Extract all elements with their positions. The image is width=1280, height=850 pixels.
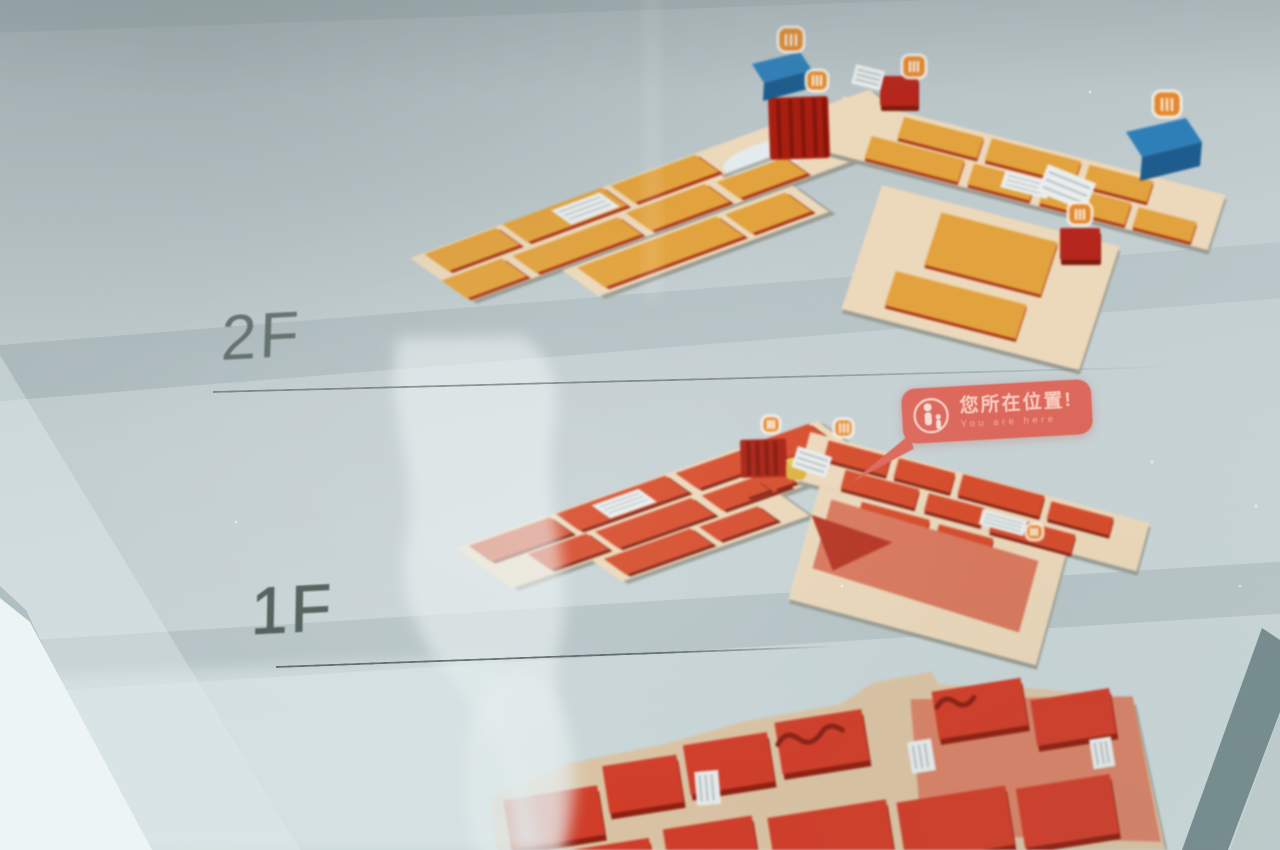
person-marker-icon <box>910 394 952 436</box>
amenity-icon <box>1068 203 1092 225</box>
mall-directory-sign-photo: 2F 1F 您所在位置! You are here <box>0 0 1280 850</box>
stairs-icon <box>851 64 885 91</box>
floor-map-1f <box>455 416 1150 684</box>
floor-map-2f <box>410 27 1226 392</box>
amenity-icon <box>778 27 804 52</box>
escalator-icon <box>907 739 936 774</box>
amenity-icon <box>834 419 853 437</box>
you-are-here-bubble: 您所在位置! You are here <box>901 379 1094 445</box>
floor-label-2f: 2F <box>220 302 303 370</box>
amenity-icon <box>762 416 780 433</box>
floor-map-lower <box>474 640 1172 850</box>
red-striped-feature-1f <box>740 438 787 478</box>
bubble-tail <box>845 432 920 488</box>
floor-label-1f: 1F <box>250 574 334 644</box>
escalator-icon <box>1089 736 1115 769</box>
amenity-icon <box>1153 91 1181 117</box>
red-striped-feature-2f <box>768 96 830 160</box>
amenity-icon <box>1026 524 1043 540</box>
blue-facility-block <box>752 52 812 101</box>
you-are-here-text: 您所在位置! You are here <box>959 391 1074 429</box>
amenity-icon <box>806 70 828 91</box>
you-are-here-text-zh: 您所在位置! <box>959 391 1073 417</box>
escalator-icon <box>694 770 721 806</box>
amenity-icon <box>902 55 926 78</box>
blue-facility-block <box>1126 118 1202 181</box>
